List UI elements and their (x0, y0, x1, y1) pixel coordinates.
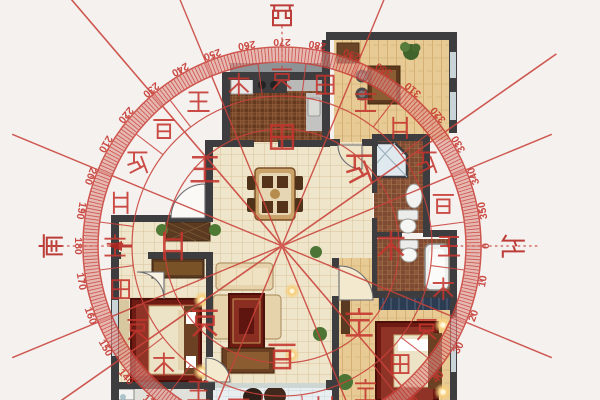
svg-text:10: 10 (476, 274, 490, 288)
